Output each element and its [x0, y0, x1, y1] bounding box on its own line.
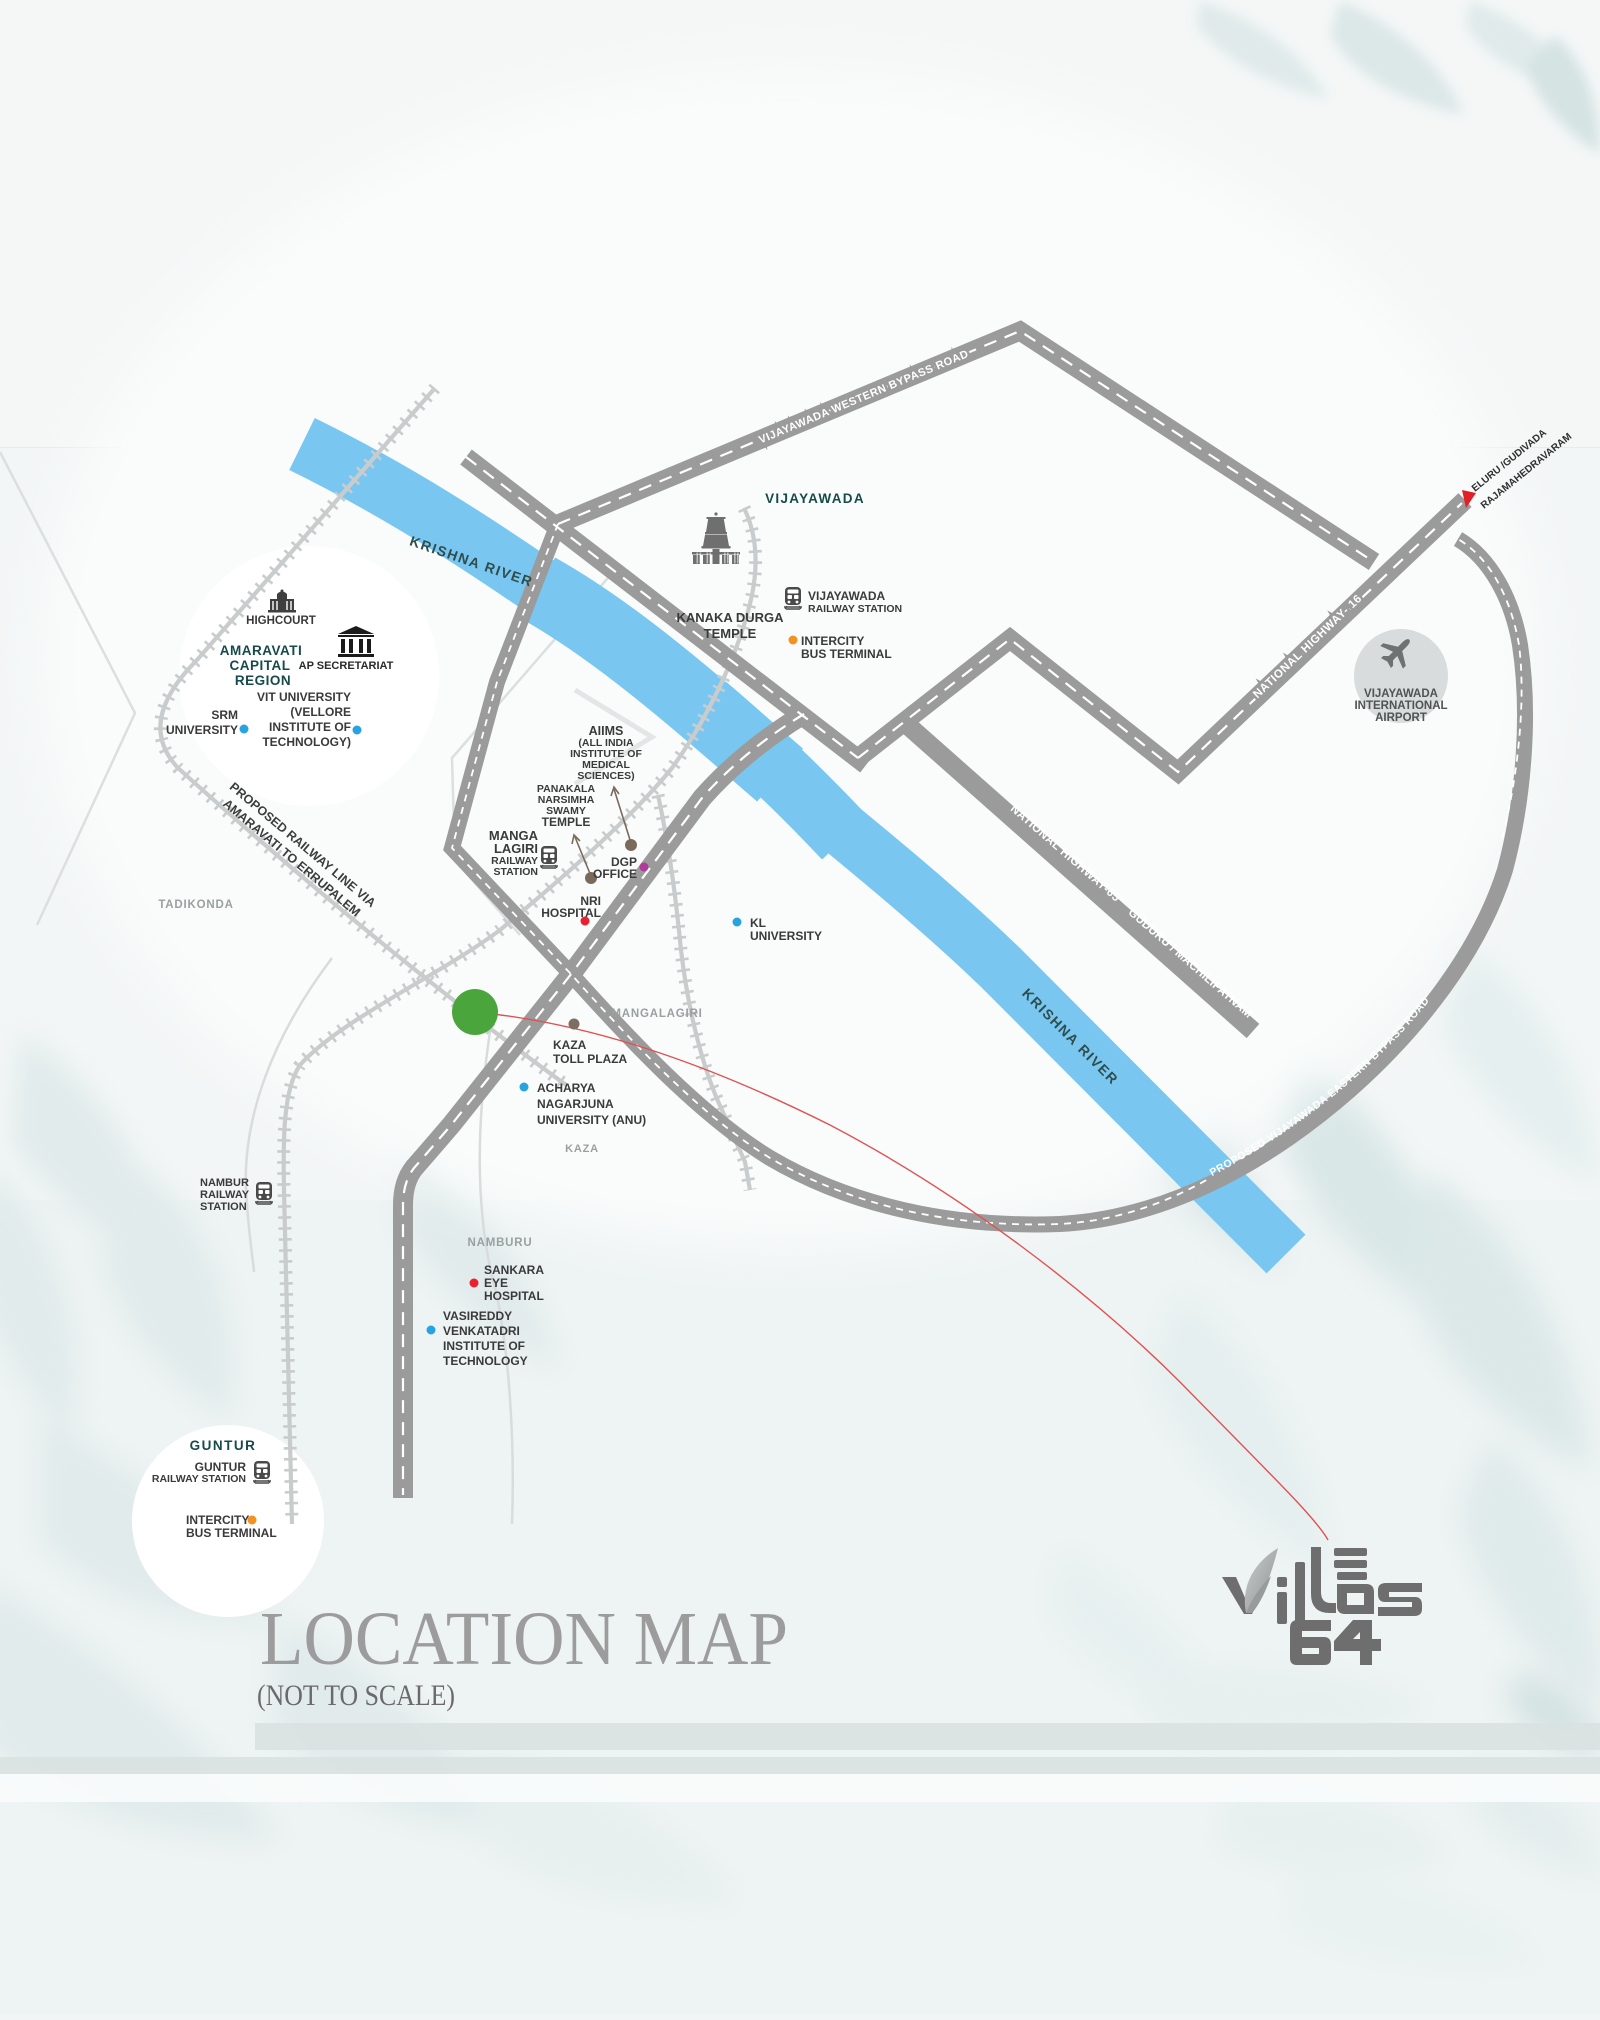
svg-text:NAMBUR: NAMBUR: [200, 1177, 249, 1189]
svg-text:NAGARJUNA: NAGARJUNA: [537, 1097, 614, 1111]
svg-text:UNIVERSITY: UNIVERSITY: [750, 929, 822, 943]
svg-text:INTERCITY: INTERCITY: [186, 1513, 249, 1527]
svg-text:TEMPLE: TEMPLE: [704, 626, 757, 641]
svg-text:INSTITUTE OF: INSTITUTE OF: [269, 720, 351, 734]
svg-text:EYE: EYE: [484, 1276, 508, 1290]
svg-text:UNIVERSITY: UNIVERSITY: [166, 723, 238, 737]
svg-text:VIJAYAWADA: VIJAYAWADA: [808, 589, 885, 603]
svg-text:RAILWAY STATION: RAILWAY STATION: [152, 1473, 246, 1485]
svg-text:(VELLORE: (VELLORE: [290, 705, 351, 719]
svg-text:HIGHCOURT: HIGHCOURT: [246, 615, 316, 627]
svg-text:LAGIRI: LAGIRI: [494, 841, 538, 856]
svg-text:GUNTUR: GUNTUR: [190, 1438, 257, 1453]
svg-text:NAMBURU: NAMBURU: [467, 1237, 532, 1249]
svg-text:SRM: SRM: [211, 708, 238, 722]
svg-text:REGION: REGION: [235, 673, 291, 688]
svg-text:TEMPLE: TEMPLE: [542, 815, 591, 829]
svg-text:MANGALAGIRI: MANGALAGIRI: [611, 1008, 702, 1020]
svg-text:HOSPITAL: HOSPITAL: [484, 1289, 544, 1303]
svg-text:INTERNATIONAL: INTERNATIONAL: [1354, 700, 1447, 712]
svg-text:KL: KL: [750, 916, 766, 930]
svg-text:AP SECRETARIAT: AP SECRETARIAT: [299, 660, 394, 672]
svg-text:KAZA: KAZA: [565, 1143, 599, 1155]
svg-text:LOCATION MAP: LOCATION MAP: [260, 1597, 788, 1681]
svg-text:BUS TERMINAL: BUS TERMINAL: [801, 647, 892, 661]
svg-text:BUS TERMINAL: BUS TERMINAL: [186, 1526, 277, 1540]
svg-text:UNIVERSITY (ANU): UNIVERSITY (ANU): [537, 1113, 646, 1127]
svg-text:KAZA: KAZA: [553, 1038, 587, 1052]
svg-text:RAILWAY STATION: RAILWAY STATION: [808, 603, 902, 615]
svg-text:VIT UNIVERSITY: VIT UNIVERSITY: [257, 690, 351, 704]
svg-text:GUNTUR: GUNTUR: [195, 1460, 247, 1474]
svg-text:KANAKA DURGA: KANAKA DURGA: [676, 610, 784, 625]
svg-text:SCIENCES): SCIENCES): [577, 770, 634, 782]
svg-text:HOSPITAL: HOSPITAL: [541, 906, 601, 920]
svg-text:STATION: STATION: [493, 866, 538, 878]
svg-text:INTERCITY: INTERCITY: [801, 634, 864, 648]
svg-text:INSTITUTE OF: INSTITUTE OF: [443, 1339, 525, 1353]
svg-text:OFFICE: OFFICE: [593, 867, 637, 881]
svg-text:TOLL PLAZA: TOLL PLAZA: [553, 1052, 628, 1066]
svg-text:TECHNOLOGY: TECHNOLOGY: [443, 1354, 528, 1368]
svg-text:(NOT TO SCALE): (NOT TO SCALE): [257, 1679, 455, 1712]
svg-text:ACHARYA: ACHARYA: [537, 1081, 596, 1095]
svg-text:AIIMS: AIIMS: [589, 724, 624, 738]
svg-text:CAPITAL: CAPITAL: [230, 658, 291, 673]
svg-text:VASIREDDY: VASIREDDY: [443, 1309, 512, 1323]
svg-text:TECHNOLOGY): TECHNOLOGY): [262, 735, 351, 749]
svg-text:TADIKONDA: TADIKONDA: [158, 899, 233, 911]
svg-text:VENKATADRI: VENKATADRI: [443, 1324, 520, 1338]
svg-text:VIJAYAWADA: VIJAYAWADA: [1364, 688, 1438, 700]
svg-text:RAILWAY: RAILWAY: [200, 1189, 250, 1201]
svg-text:VIJAYAWADA: VIJAYAWADA: [765, 491, 865, 506]
svg-text:AIRPORT: AIRPORT: [1375, 712, 1427, 724]
svg-text:STATION: STATION: [200, 1201, 247, 1213]
svg-text:AMARAVATI: AMARAVATI: [220, 643, 303, 658]
svg-text:SANKARA: SANKARA: [484, 1263, 544, 1277]
